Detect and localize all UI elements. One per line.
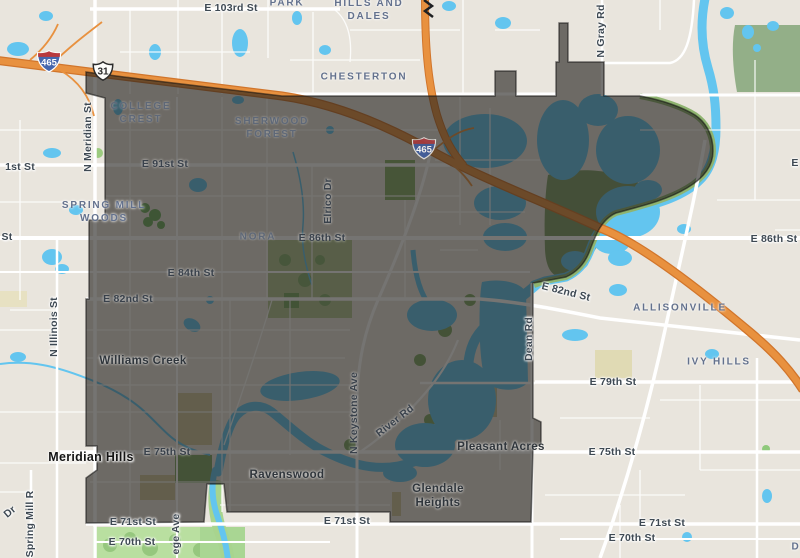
map-viewport[interactable]: 465 31 465 E 103rd St1st StE 91st StStE …: [0, 0, 800, 558]
map-canvas: [0, 0, 800, 558]
